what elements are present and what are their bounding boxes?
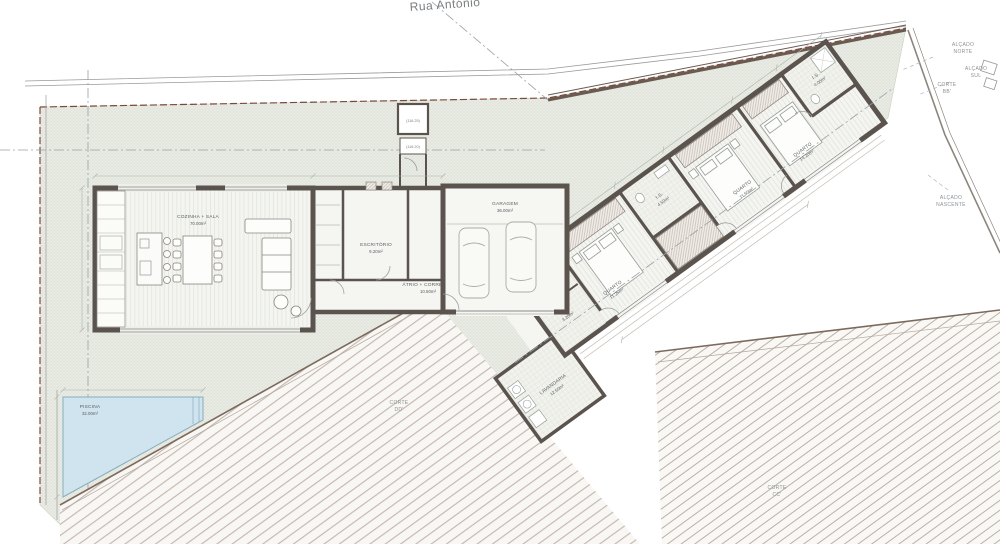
neighbour-roof bbox=[655, 310, 1000, 544]
corte-cc-label2: CC' bbox=[772, 492, 781, 498]
level-lower: (116.20) bbox=[406, 145, 421, 149]
corte-bb-label2: BB' bbox=[943, 89, 952, 95]
office-area: 9.20m² bbox=[369, 249, 383, 254]
floor-plan-drawing: PISCINA 32.00m² LAVANDARIA 12.50m² bbox=[0, 0, 1000, 544]
pool-label: PISCINA bbox=[80, 404, 101, 410]
pool-area: 32.00m² bbox=[82, 411, 99, 416]
corte-dd-label: CORTE bbox=[390, 400, 409, 406]
garage: GARAGEM 36.00m² bbox=[443, 186, 567, 316]
street-label: Rua António bbox=[409, 0, 481, 14]
alcado-nascente-label: ALÇADO bbox=[940, 195, 962, 201]
corte-bb-label: CORTE bbox=[938, 82, 957, 88]
car bbox=[459, 228, 489, 298]
kitchen-cabinets bbox=[97, 191, 125, 327]
garage-label: GARAGEM bbox=[492, 201, 518, 207]
alcado-sul-label: ALÇADO bbox=[965, 66, 987, 72]
alcado-norte-label2: NORTE bbox=[954, 49, 973, 55]
alcado-norte-label: ALÇADO bbox=[952, 42, 974, 48]
neighbour-buildings bbox=[980, 60, 997, 90]
living-wing: COZINHA + SALA 70.00m² bbox=[95, 184, 313, 334]
alcado-nascente-label2: NASCENTE bbox=[936, 202, 966, 208]
corte-cc-label: CORTE bbox=[768, 485, 787, 491]
living-label: COZINHA + SALA bbox=[177, 214, 219, 220]
level-upper: (116.25) bbox=[406, 119, 421, 123]
street-label-group: Rua António bbox=[409, 0, 481, 14]
site-plan-canvas: PISCINA 32.00m² LAVANDARIA 12.50m² bbox=[0, 0, 1000, 544]
living-area: 70.00m² bbox=[190, 221, 207, 226]
elevation-labels: ALÇADO NORTE ALÇADO SUL CORTE BB' ALÇADO… bbox=[902, 42, 987, 208]
alcado-sul-label2: SUL bbox=[971, 73, 982, 79]
office-label: ESCRITÓRIO bbox=[360, 241, 392, 248]
corte-dd-label2: DD' bbox=[394, 407, 403, 413]
hall-area: 10.50m² bbox=[420, 289, 437, 294]
car bbox=[506, 222, 536, 292]
garage-area: 36.00m² bbox=[497, 208, 514, 213]
